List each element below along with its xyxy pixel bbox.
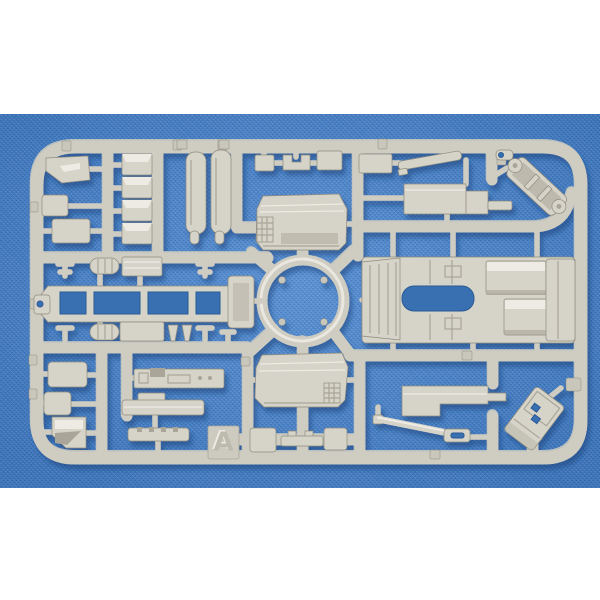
part-cab-hood-lower: [255, 353, 348, 407]
part-tow-rod: [373, 415, 470, 442]
part-interior-floor-pan: [362, 257, 575, 343]
part-chassis-frame: [34, 276, 254, 328]
part-cab-hood-upper: [256, 194, 347, 250]
part-dashboard: [134, 368, 224, 388]
ring-inner-nubs: [279, 277, 328, 326]
part-small-box-b: [52, 219, 90, 243]
sprue-letter: A: [213, 428, 233, 458]
part-slotted-bumper: [128, 427, 189, 441]
sprue-frame-a: A A: [29, 139, 581, 459]
part-mudflap: [46, 156, 90, 183]
sprue-photo: A A: [0, 0, 600, 600]
part-rear-door-hatch: [503, 386, 565, 452]
sprue-drawing: A A: [0, 0, 600, 600]
part-small-box-c: [359, 154, 392, 173]
part-wedge-blocks: [122, 154, 152, 244]
part-fuel-tank: [404, 184, 512, 214]
sprue-letter-tab: A A: [208, 426, 239, 459]
part-sill-step: [122, 393, 204, 415]
part-diagonal-bar: [397, 151, 463, 176]
part-small-box-a: [42, 195, 68, 216]
part-seat-cushions: [177, 140, 231, 244]
